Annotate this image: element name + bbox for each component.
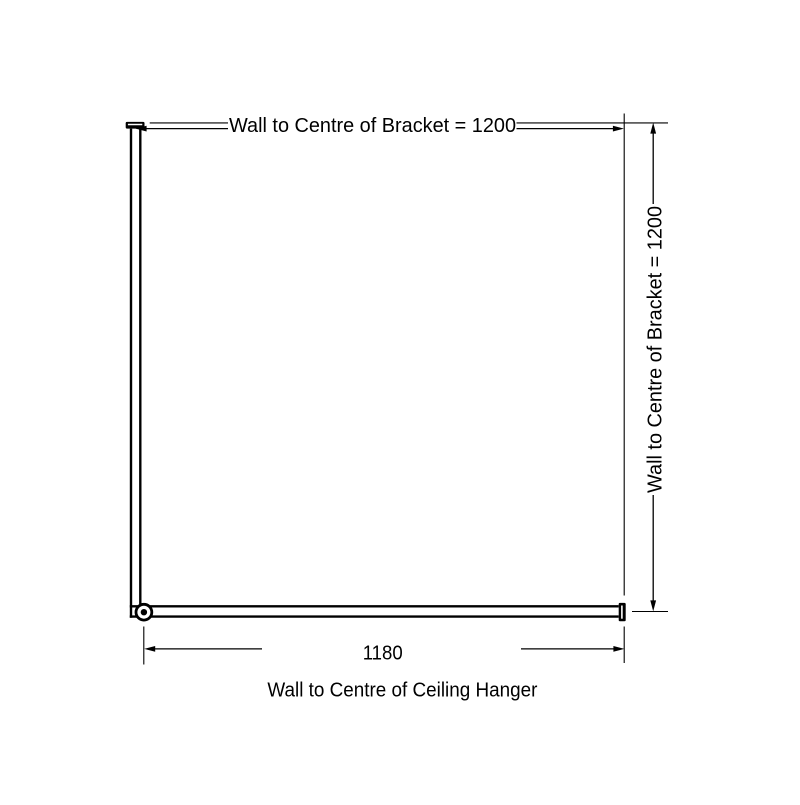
svg-text:Wall to Centre of Bracket = 12: Wall to Centre of Bracket = 1200 — [643, 206, 666, 493]
svg-text:Wall to Centre of Bracket = 12: Wall to Centre of Bracket = 1200 — [229, 114, 516, 137]
svg-text:Wall to Centre of Ceiling Hang: Wall to Centre of Ceiling Hanger — [267, 679, 537, 702]
svg-text:1180: 1180 — [363, 642, 403, 665]
